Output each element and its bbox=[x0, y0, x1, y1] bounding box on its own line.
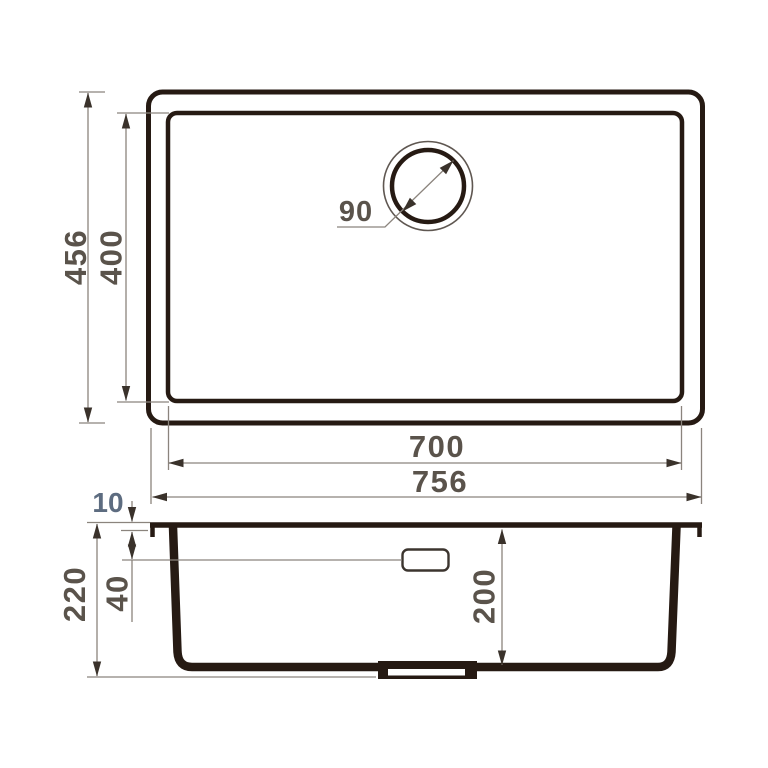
drain-fitting-slot bbox=[388, 669, 465, 676]
dim-label-overall-width: 756 bbox=[412, 464, 468, 499]
top-view-bowl-outline bbox=[168, 113, 682, 401]
dim-label-bowl-depth: 400 bbox=[93, 229, 128, 285]
drain-diameter-arrowhead-lower bbox=[403, 198, 417, 212]
side-view-bowl-outline bbox=[173, 527, 677, 667]
dim-label-bowl-inner-depth: 200 bbox=[466, 568, 501, 624]
dim-label-overall-depth: 456 bbox=[58, 229, 93, 285]
sink-dimension-drawing: 90 456 400 700 756 bbox=[0, 0, 768, 768]
dim-label-rim-thickness: 10 bbox=[92, 487, 123, 518]
drawing-svg: 90 456 400 700 756 bbox=[0, 0, 768, 768]
overflow-opening bbox=[403, 550, 449, 571]
dim-label-drain-diameter: 90 bbox=[339, 196, 373, 228]
top-view: 90 456 400 700 756 bbox=[58, 92, 703, 504]
dim-label-overflow-drop: 40 bbox=[99, 574, 134, 611]
dim-label-bowl-width: 700 bbox=[409, 429, 465, 464]
dim-label-overall-height: 220 bbox=[57, 566, 92, 622]
side-view: 10 40 220 200 bbox=[57, 487, 702, 679]
